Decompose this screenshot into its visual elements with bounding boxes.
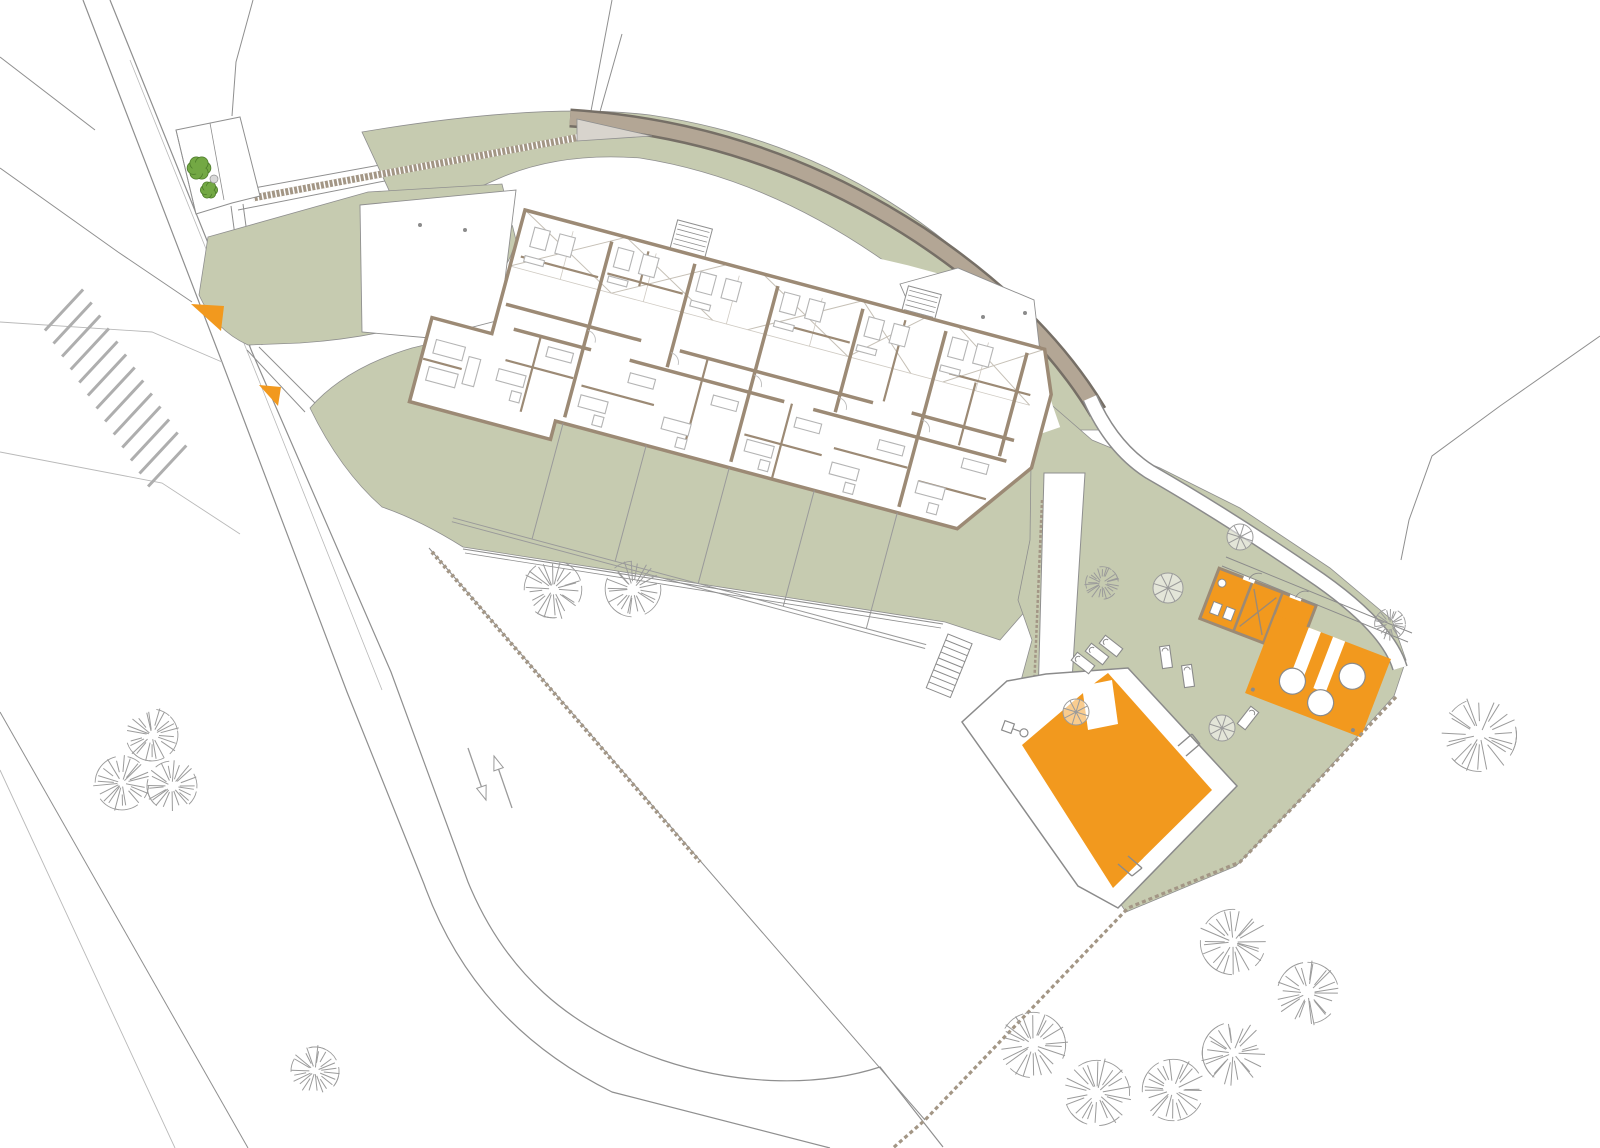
parking-stripe	[97, 368, 135, 409]
parking-stripe	[105, 381, 143, 422]
tree-symbol	[1227, 524, 1253, 550]
entrance-arrow-marker	[191, 304, 224, 331]
site-plan-page	[0, 0, 1600, 1148]
tree-symbol	[1063, 699, 1089, 725]
parking-stripe	[88, 355, 126, 396]
paved-forecourt	[360, 190, 516, 338]
parking-stripe	[114, 394, 152, 435]
tree-symbol	[1065, 1059, 1131, 1126]
tree-symbol	[127, 709, 179, 761]
tree-symbol	[524, 562, 582, 618]
furniture-symbol	[675, 437, 687, 449]
tree-symbol	[291, 1045, 340, 1092]
tree-symbol	[147, 760, 197, 811]
tree-symbol	[1442, 699, 1517, 772]
tree-symbol	[1153, 573, 1183, 603]
site-line	[0, 770, 175, 1148]
tree-symbol	[1278, 961, 1338, 1025]
tree-symbol	[1001, 1012, 1068, 1077]
furniture-symbol	[592, 415, 604, 427]
parking-stripe	[54, 303, 92, 344]
parking-stripe	[131, 420, 169, 461]
furniture-symbol	[758, 459, 770, 471]
parking-stripe	[71, 329, 109, 370]
tree-symbol	[1202, 1024, 1265, 1086]
parking-stripe	[140, 433, 178, 474]
road-direction-arrow	[494, 756, 512, 808]
site-line	[0, 452, 240, 534]
tree-symbol	[1209, 715, 1235, 741]
site-line	[0, 57, 95, 130]
architectural-site-plan-canvas	[0, 0, 1600, 1148]
tree-symbol	[1200, 909, 1265, 974]
entry-court	[176, 117, 260, 214]
furniture-symbol	[926, 503, 938, 515]
green-shrub	[200, 182, 217, 198]
site-line	[232, 0, 253, 116]
site-line	[0, 168, 192, 302]
entrance-arrow-marker	[259, 385, 281, 406]
parking-stripe	[45, 290, 83, 331]
parking-stripe	[122, 407, 160, 448]
site-line	[1401, 336, 1600, 560]
site-line	[0, 322, 222, 362]
road-direction-arrow	[468, 748, 486, 800]
parking-stripe	[148, 446, 186, 487]
parking-stripe	[62, 316, 100, 357]
furniture-symbol	[843, 482, 855, 494]
green-shrub	[187, 157, 211, 179]
parking-stripe	[79, 342, 117, 383]
tree-symbol	[93, 755, 149, 810]
outdoor-stairs	[926, 634, 972, 698]
tree-symbol	[1142, 1059, 1202, 1121]
furniture-symbol	[509, 391, 521, 403]
site-line	[259, 347, 316, 404]
site-line	[130, 60, 382, 690]
